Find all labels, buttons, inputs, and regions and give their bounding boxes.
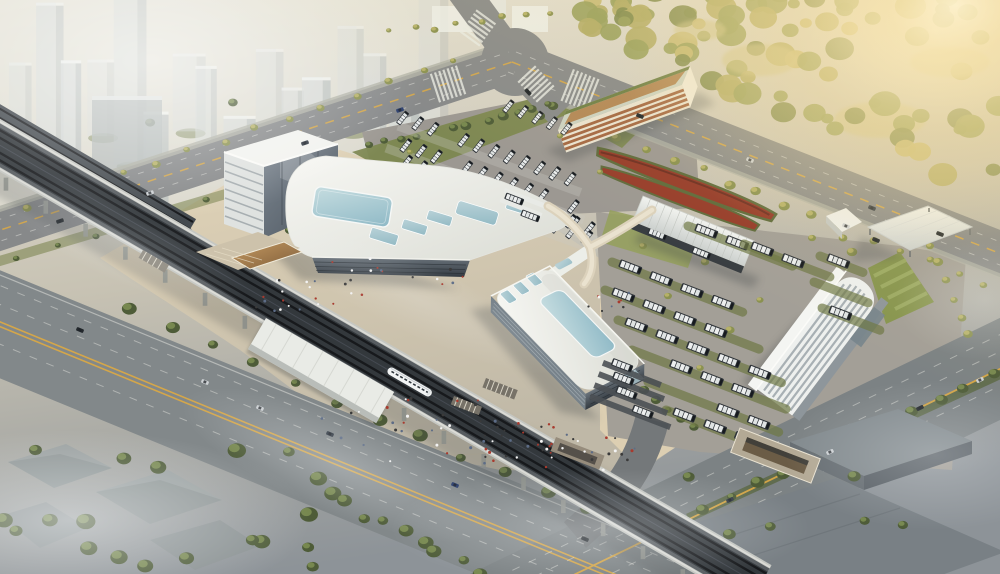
atmosphere [0, 0, 1000, 574]
rendering-stage: Aerial rendering of a high-speed rail tr… [0, 0, 1000, 574]
aerial-rendering [0, 0, 1000, 574]
